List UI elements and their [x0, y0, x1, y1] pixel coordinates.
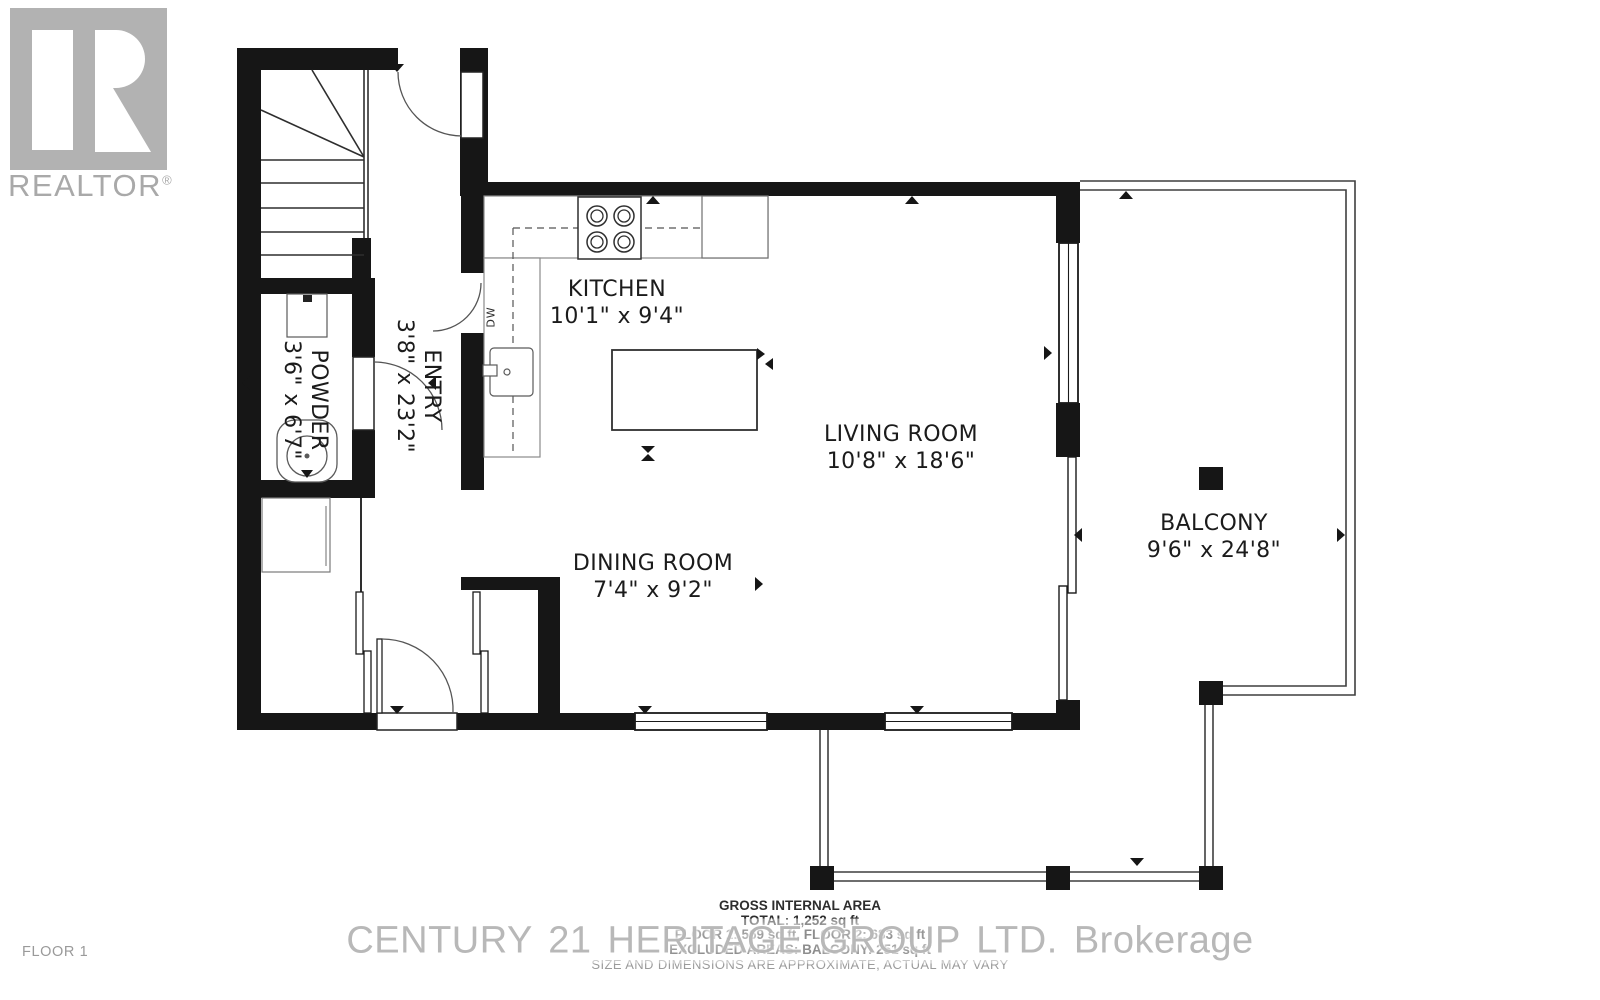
room-dims: 10'8" x 18'6" — [824, 448, 978, 475]
room-name: LIVING ROOM — [824, 421, 978, 448]
living-room-label: LIVING ROOM 10'8" x 18'6" — [824, 421, 978, 475]
room-name: BALCONY — [1147, 510, 1281, 537]
kitchen-island — [612, 350, 757, 430]
sliding-door-panel — [1068, 457, 1076, 593]
room-dims: 10'1" x 9'4" — [550, 303, 684, 330]
balcony-label: BALCONY 9'6" x 24'8" — [1147, 510, 1281, 564]
room-dims: 3'6" x 6'7" — [278, 340, 305, 460]
dishwasher-label: DW — [485, 306, 498, 327]
front-door-threshold — [377, 713, 457, 730]
door-arc — [382, 639, 453, 713]
balcony-railing — [1080, 181, 1355, 695]
summary-title: GROSS INTERNAL AREA — [591, 899, 1008, 914]
deck-railing — [820, 705, 1213, 881]
realtor-logo — [10, 8, 167, 174]
faucet-icon — [303, 295, 312, 302]
kitchen-label: KITCHEN 10'1" x 9'4" — [550, 276, 684, 330]
sliding-door-panel — [481, 651, 488, 713]
room-name: ENTRY — [418, 319, 445, 453]
room-dims: 7'4" x 9'2" — [573, 577, 733, 604]
door-leaf — [461, 72, 483, 138]
door-arc — [398, 72, 462, 136]
door-leaf — [377, 639, 382, 713]
realtor-wordmark: REALTOR® — [8, 168, 173, 204]
kitchen-sink-icon — [483, 348, 533, 396]
dining-room-label: DINING ROOM 7'4" x 9'2" — [573, 550, 733, 604]
room-name: POWDER — [305, 340, 332, 460]
fridge-icon — [702, 196, 768, 258]
room-dims: 3'8" x 23'2" — [391, 319, 418, 453]
realtor-r-icon — [10, 8, 167, 170]
floorplan-drawing — [0, 0, 1600, 1000]
room-name: DINING ROOM — [573, 550, 733, 577]
entry-label: ENTRY 3'8" x 23'2" — [391, 319, 445, 453]
powder-label: POWDER 3'6" x 6'7" — [278, 340, 332, 460]
hall-cabinet — [262, 498, 330, 572]
room-name: KITCHEN — [550, 276, 684, 303]
sliding-door-panel — [1059, 586, 1067, 700]
room-dims: 9'6" x 24'8" — [1147, 537, 1281, 564]
sliding-door-panel — [473, 592, 480, 654]
sliding-door-panel — [364, 651, 371, 713]
floor-number-label: FLOOR 1 — [22, 944, 88, 960]
sliding-door-panel — [356, 592, 363, 654]
stove-icon — [578, 197, 641, 259]
brokerage-watermark: CENTURY 21 HERITAGE GROUP LTD. Brokerage — [334, 919, 1265, 964]
door-leaf — [353, 357, 374, 430]
